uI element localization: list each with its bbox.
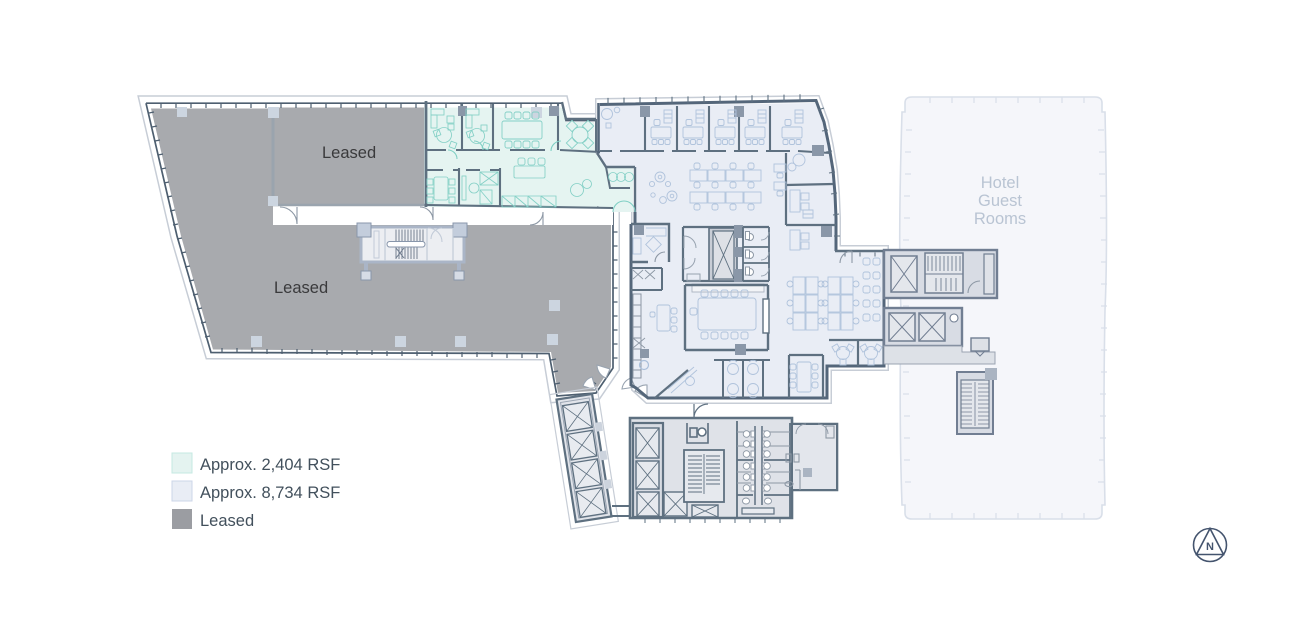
svg-text:N: N (1206, 541, 1214, 553)
svg-text:Approx. 2,404 RSF: Approx. 2,404 RSF (200, 456, 340, 474)
svg-text:Hotel: Hotel (981, 174, 1020, 192)
svg-text:Approx. 8,734 RSF: Approx. 8,734 RSF (200, 484, 340, 502)
svg-text:Leased: Leased (322, 144, 376, 162)
svg-text:Rooms: Rooms (974, 210, 1026, 228)
svg-text:Leased: Leased (274, 279, 328, 297)
svg-text:Leased: Leased (200, 512, 254, 530)
svg-text:Guest: Guest (978, 192, 1022, 210)
